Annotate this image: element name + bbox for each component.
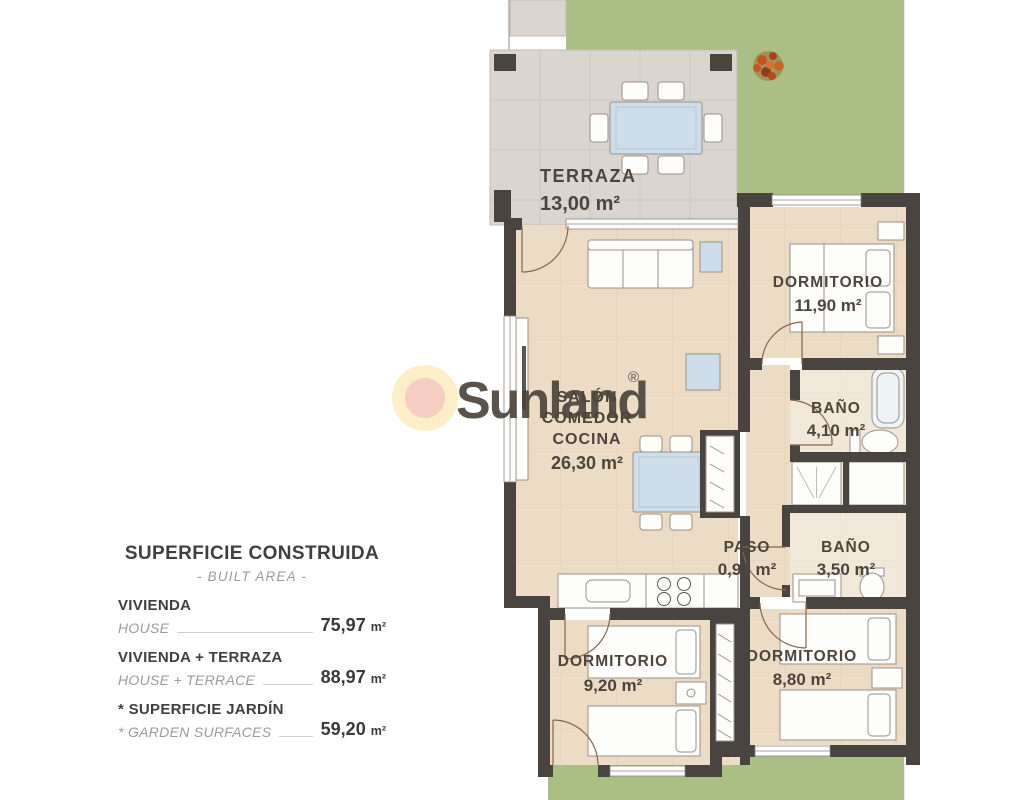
coffee-table [686, 354, 720, 390]
svg-text:3,50 m²: 3,50 m² [817, 560, 876, 579]
legend-row-vivienda-terraza: VIVIENDA + TERRAZA HOUSE + TERRACE 88,97… [118, 649, 386, 688]
legend-label-es: VIVIENDA + TERRAZA [118, 649, 386, 666]
area-legend: SUPERFICIE CONSTRUIDA - BUILT AREA - VIV… [118, 543, 386, 740]
living-terrace-window [566, 219, 738, 229]
legend-leader-line [263, 684, 313, 685]
sofa [588, 240, 693, 288]
svg-text:DORMITORIO: DORMITORIO [558, 653, 668, 670]
bedroom1-window [772, 195, 861, 205]
kitchen-counter [558, 574, 738, 608]
svg-text:4,10 m²: 4,10 m² [807, 421, 866, 440]
svg-text:9,20 m²: 9,20 m² [584, 676, 643, 695]
legend-label-es: VIVIENDA [118, 597, 386, 614]
svg-text:COCINA: COCINA [552, 431, 621, 448]
svg-text:TERRAZA: TERRAZA [540, 166, 637, 186]
svg-text:BAÑO: BAÑO [821, 538, 871, 556]
side-table [700, 242, 722, 272]
svg-text:PASO: PASO [724, 539, 771, 556]
bedroom2-window [610, 766, 685, 776]
legend-value: 88,97 m² [321, 667, 386, 688]
svg-text:COMEDOR: COMEDOR [542, 410, 633, 427]
svg-text:26,30 m²: 26,30 m² [551, 453, 623, 473]
svg-text:0,90 m²: 0,90 m² [718, 560, 777, 579]
legend-label-es: * SUPERFICIE JARDÍN [118, 701, 386, 718]
legend-title: SUPERFICIE CONSTRUIDA [118, 543, 386, 565]
svg-text:BAÑO: BAÑO [811, 399, 861, 417]
hall-closet [700, 430, 740, 518]
bedroom3-window [755, 746, 830, 756]
legend-label-en: HOUSE [118, 620, 169, 636]
svg-text:DORMITORIO: DORMITORIO [773, 274, 883, 291]
wardrobe [710, 618, 740, 747]
legend-value: 59,20 m² [321, 719, 386, 740]
bathtub [872, 368, 904, 428]
legend-label-en: HOUSE + TERRACE [118, 672, 255, 688]
svg-text:8,80 m²: 8,80 m² [773, 670, 832, 689]
legend-value: 75,97 m² [321, 615, 386, 636]
svg-text:13,00 m²: 13,00 m² [540, 193, 620, 215]
legend-row-vivienda: VIVIENDA HOUSE 75,97 m² [118, 597, 386, 636]
svg-text:SALÓN: SALÓN [557, 387, 618, 406]
floorplan-page: Sunland ® TERRAZA 13,00 m² SALÓN COMEDOR… [0, 0, 1024, 800]
legend-leader-line [177, 632, 312, 633]
legend-label-en: * GARDEN SURFACES [118, 724, 271, 740]
logo-registered: ® [628, 369, 639, 386]
legend-subtitle: - BUILT AREA - [118, 569, 386, 584]
legend-leader-line [279, 736, 312, 737]
svg-text:DORMITORIO: DORMITORIO [747, 648, 857, 665]
legend-row-jardin: * SUPERFICIE JARDÍN * GARDEN SURFACES 59… [118, 701, 386, 740]
svg-text:11,90 m²: 11,90 m² [794, 296, 861, 315]
